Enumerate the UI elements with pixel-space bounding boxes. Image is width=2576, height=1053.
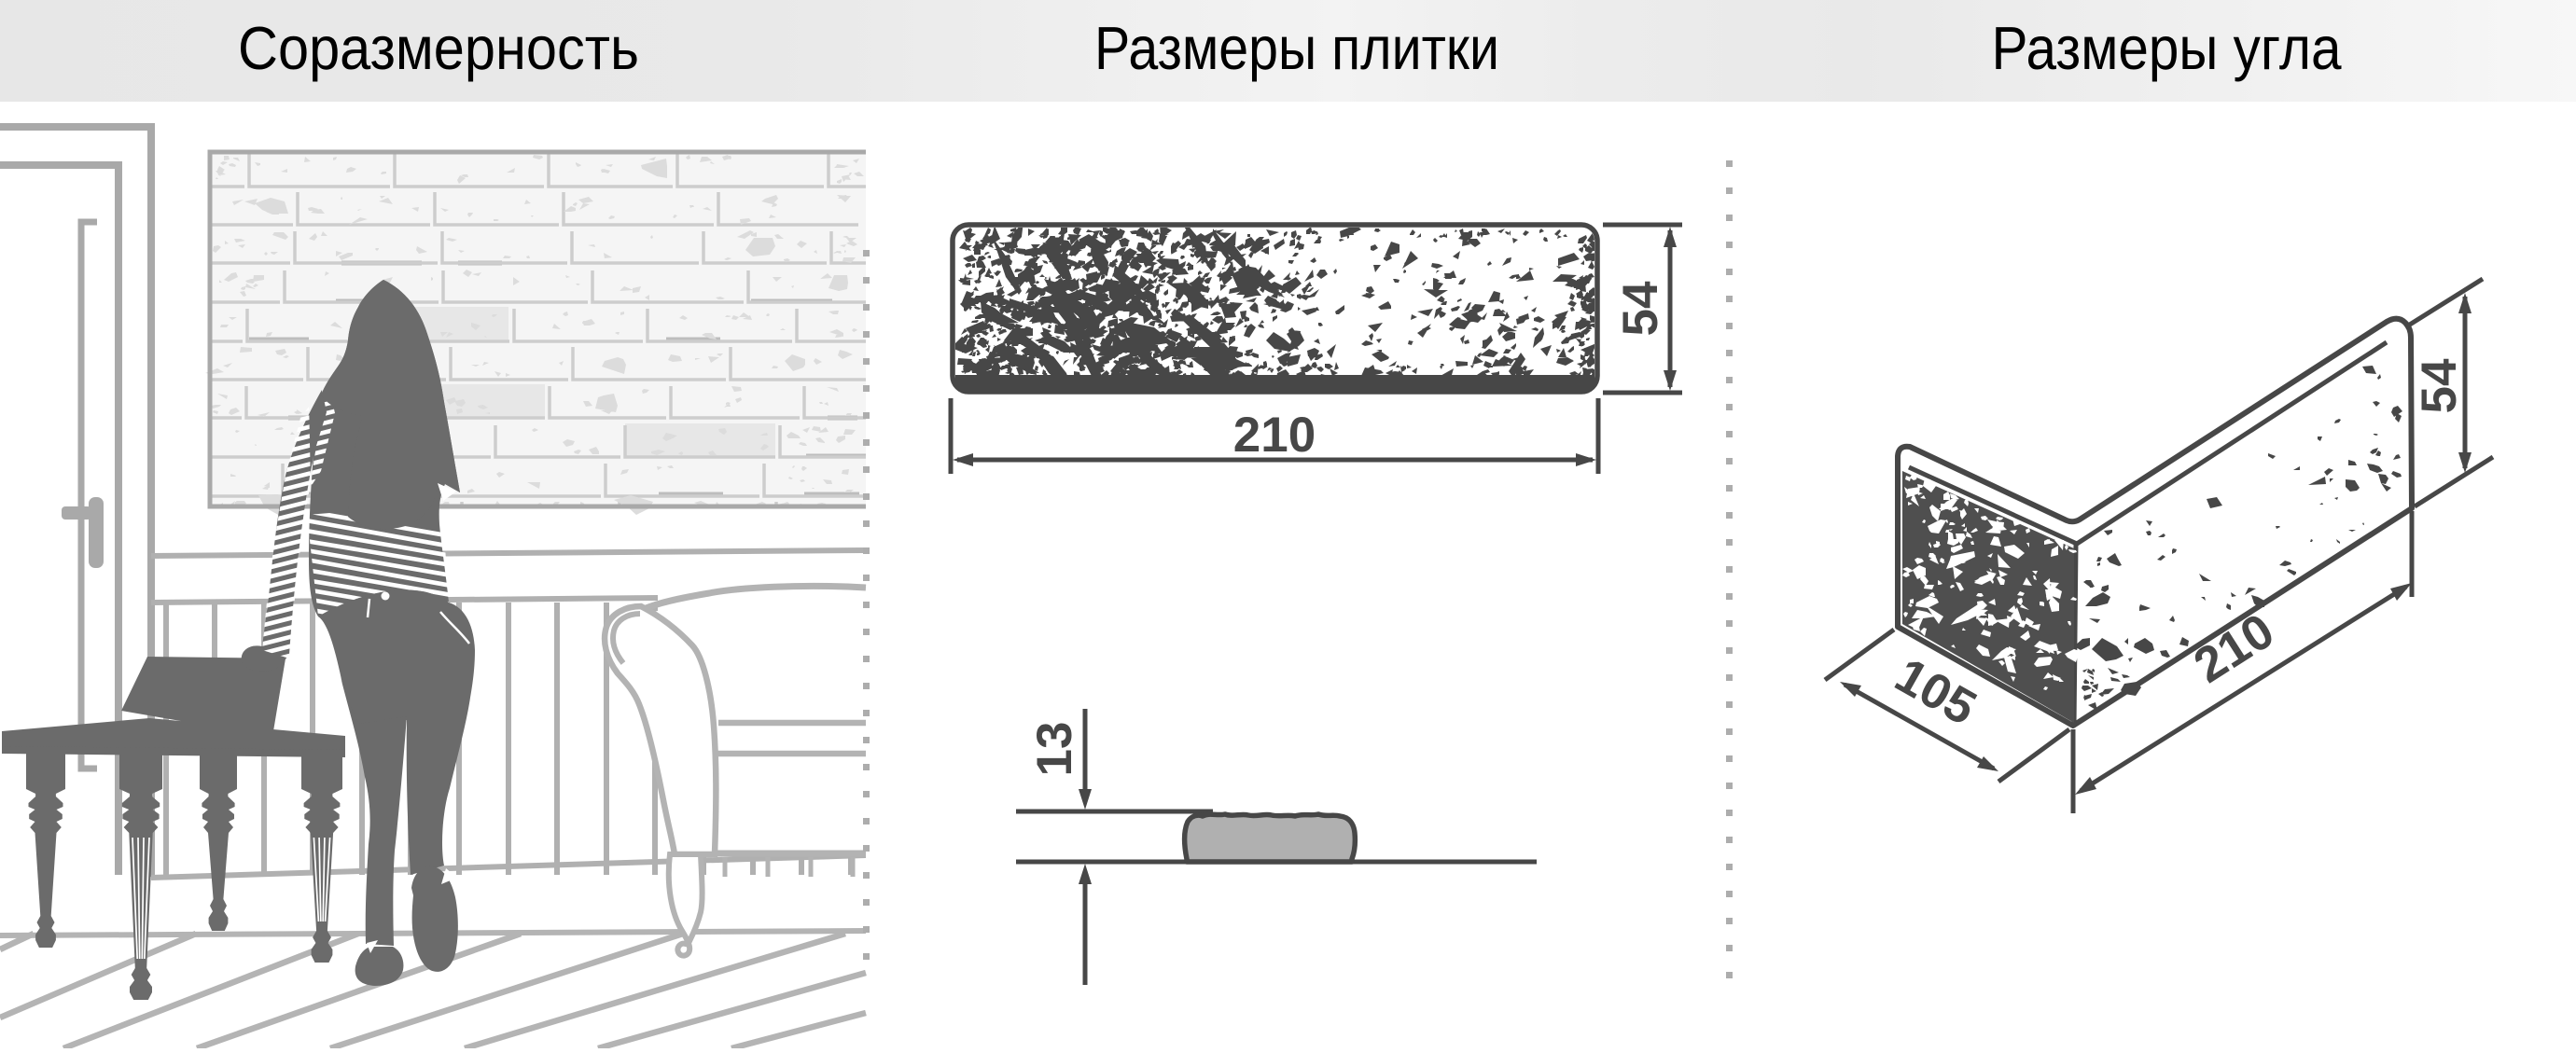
svg-text:Размеры плитки: Размеры плитки xyxy=(1094,14,1499,82)
svg-text:Соразмерность: Соразмерность xyxy=(238,14,639,82)
svg-text:54: 54 xyxy=(2412,358,2467,413)
svg-text:13: 13 xyxy=(1027,722,1082,777)
svg-text:210: 210 xyxy=(1233,408,1316,463)
svg-text:54: 54 xyxy=(1613,281,1668,336)
svg-text:Размеры угла: Размеры угла xyxy=(1992,14,2343,82)
